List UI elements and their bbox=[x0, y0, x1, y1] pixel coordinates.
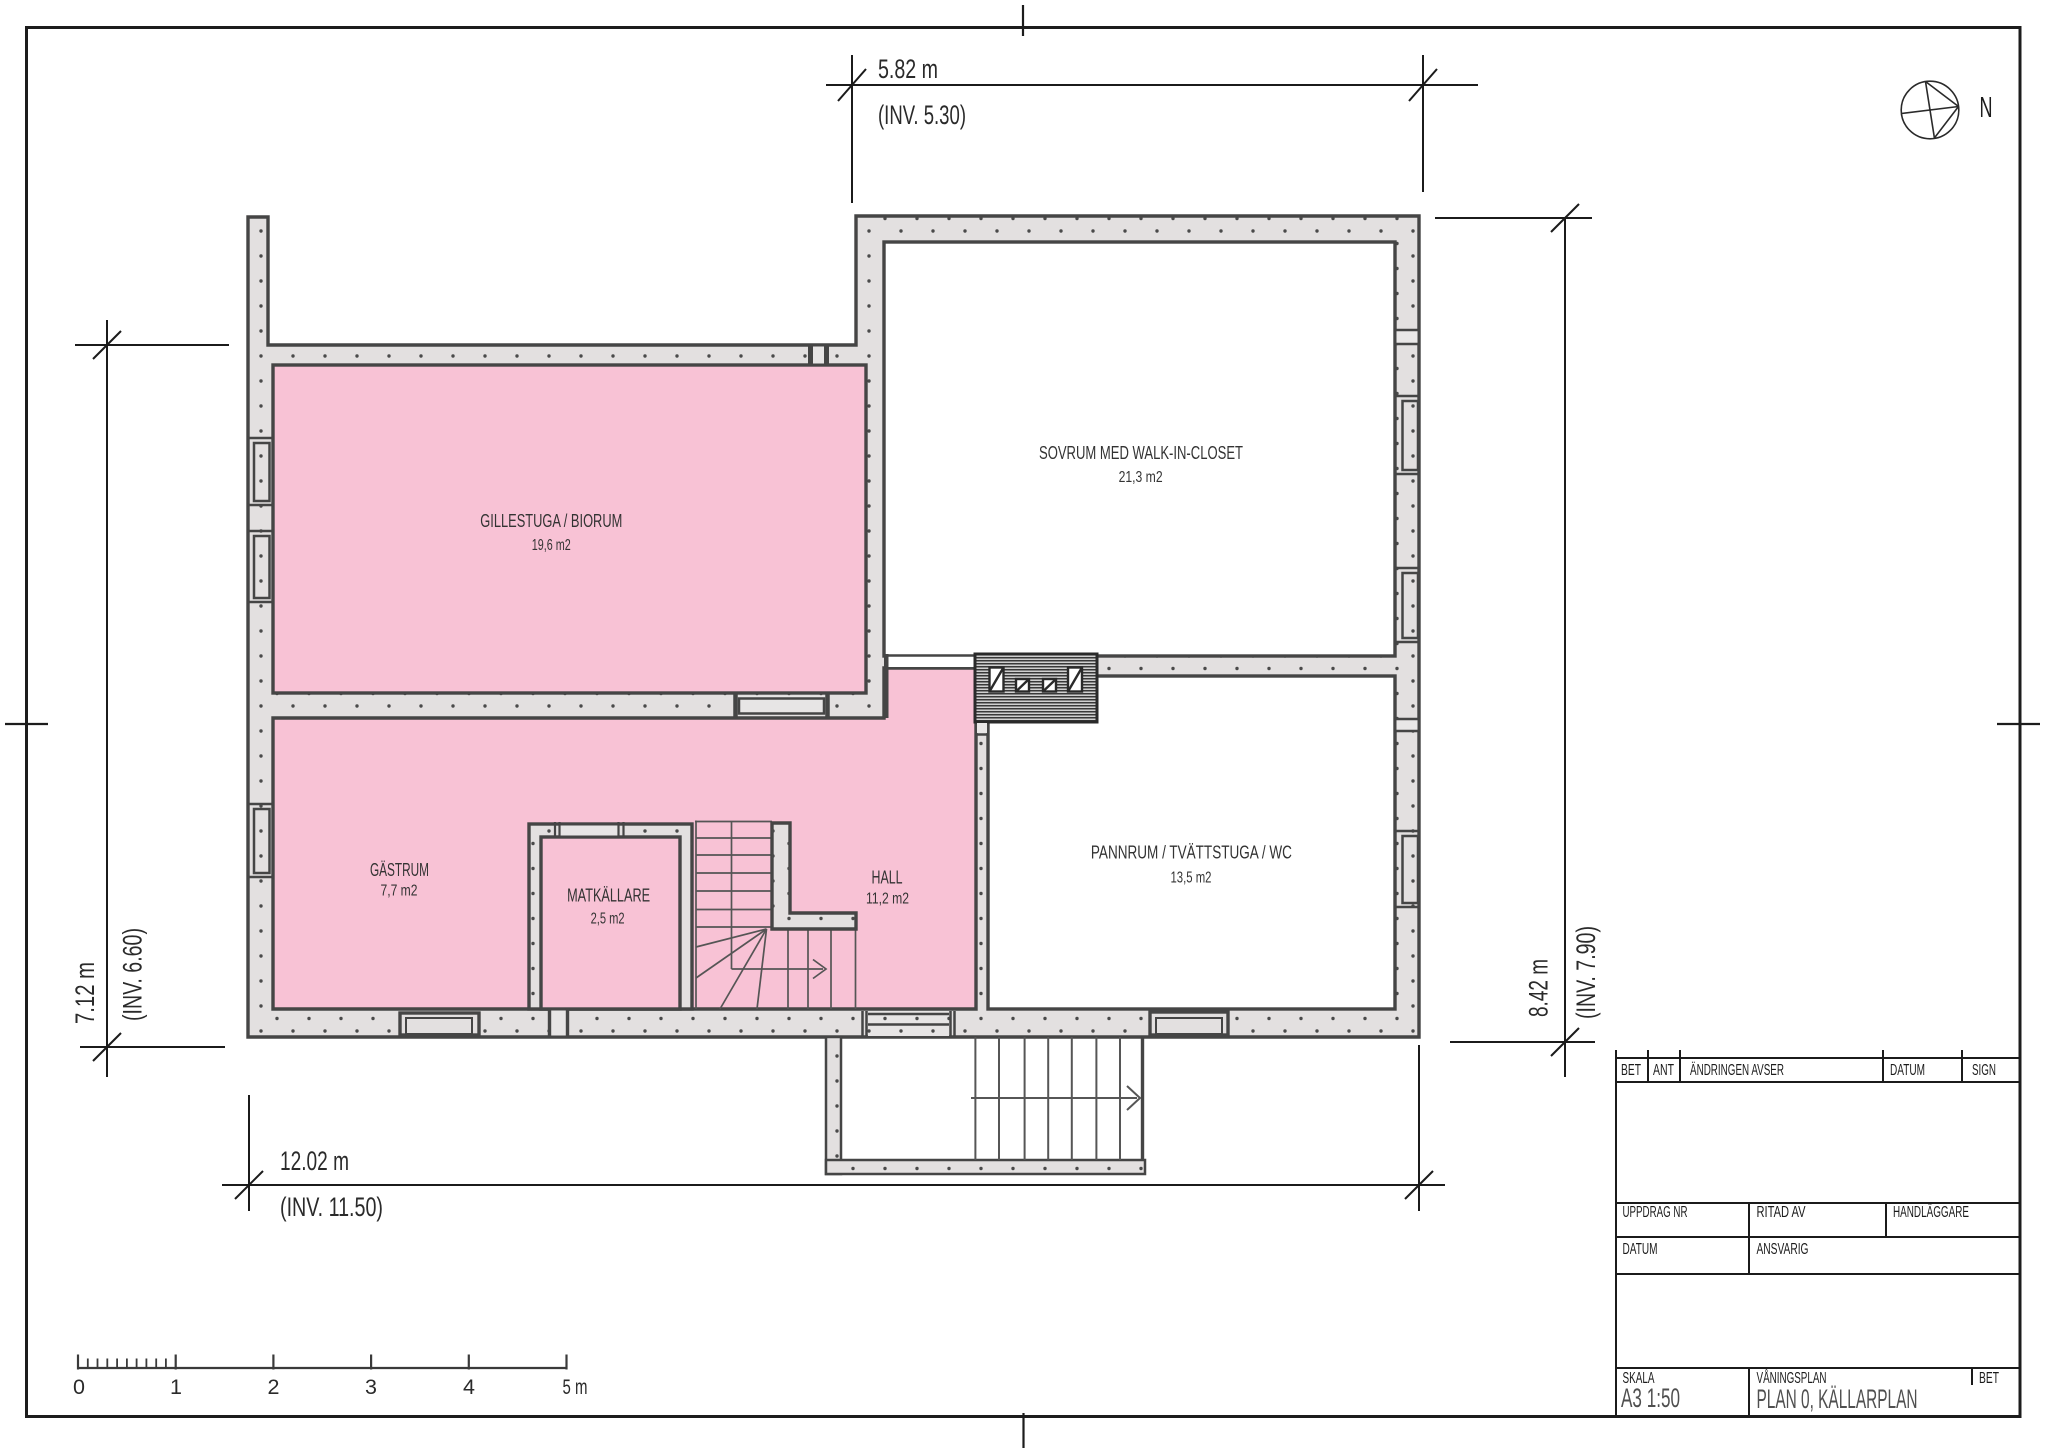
svg-text:8.42 m: 8.42 m bbox=[1524, 959, 1554, 1017]
svg-text:4: 4 bbox=[463, 1375, 475, 1399]
svg-text:7.12 m: 7.12 m bbox=[70, 962, 100, 1024]
svg-text:ANSVARIG: ANSVARIG bbox=[1757, 1241, 1809, 1258]
svg-text:1: 1 bbox=[170, 1375, 182, 1399]
svg-text:ANT: ANT bbox=[1653, 1062, 1674, 1079]
svg-text:HANDLÄGGARE: HANDLÄGGARE bbox=[1893, 1203, 1969, 1221]
svg-text:GÄSTRUM: GÄSTRUM bbox=[370, 859, 429, 880]
svg-text:13,5 m2: 13,5 m2 bbox=[1171, 870, 1212, 887]
svg-text:SIGN: SIGN bbox=[1972, 1062, 1996, 1079]
svg-text:(INV. 7.90): (INV. 7.90) bbox=[1571, 926, 1601, 1019]
svg-text:DATUM: DATUM bbox=[1890, 1062, 1925, 1079]
svg-text:(INV. 6.60): (INV. 6.60) bbox=[118, 928, 148, 1021]
svg-text:PANNRUM / TVÄTTSTUGA / WC: PANNRUM / TVÄTTSTUGA / WC bbox=[1091, 841, 1292, 862]
svg-text:21,3 m2: 21,3 m2 bbox=[1119, 469, 1163, 486]
svg-text:2: 2 bbox=[268, 1375, 280, 1399]
svg-text:ÄNDRINGEN AVSER: ÄNDRINGEN AVSER bbox=[1690, 1061, 1784, 1079]
svg-text:5.82 m: 5.82 m bbox=[878, 54, 938, 84]
svg-text:DATUM: DATUM bbox=[1623, 1241, 1658, 1258]
svg-text:3: 3 bbox=[365, 1375, 377, 1399]
svg-text:RITAD AV: RITAD AV bbox=[1757, 1204, 1806, 1221]
svg-text:HALL: HALL bbox=[872, 867, 903, 888]
svg-text:MATKÄLLARE: MATKÄLLARE bbox=[567, 885, 650, 906]
svg-text:SOVRUM MED WALK-IN-CLOSET: SOVRUM MED WALK-IN-CLOSET bbox=[1039, 442, 1243, 463]
svg-text:A3 1:50: A3 1:50 bbox=[1621, 1383, 1680, 1413]
svg-text:2,5 m2: 2,5 m2 bbox=[591, 911, 625, 928]
svg-text:11,2 m2: 11,2 m2 bbox=[866, 891, 909, 908]
svg-text:5 m: 5 m bbox=[563, 1375, 588, 1399]
svg-text:PLAN 0, KÄLLARPLAN: PLAN 0, KÄLLARPLAN bbox=[1757, 1384, 1918, 1414]
svg-text:(INV. 11.50): (INV. 11.50) bbox=[280, 1192, 383, 1222]
svg-text:0: 0 bbox=[73, 1375, 85, 1399]
svg-text:12.02 m: 12.02 m bbox=[280, 1146, 349, 1176]
svg-text:7,7 m2: 7,7 m2 bbox=[381, 883, 418, 900]
svg-text:UPPDRAG NR: UPPDRAG NR bbox=[1623, 1204, 1688, 1221]
svg-text:19,6 m2: 19,6 m2 bbox=[532, 537, 571, 554]
svg-text:N: N bbox=[1980, 92, 1993, 124]
svg-text:BET: BET bbox=[1979, 1370, 1999, 1387]
svg-text:BET: BET bbox=[1621, 1062, 1641, 1079]
svg-text:GILLESTUGA / BIORUM: GILLESTUGA / BIORUM bbox=[480, 510, 622, 531]
svg-text:(INV. 5.30): (INV. 5.30) bbox=[878, 100, 966, 130]
